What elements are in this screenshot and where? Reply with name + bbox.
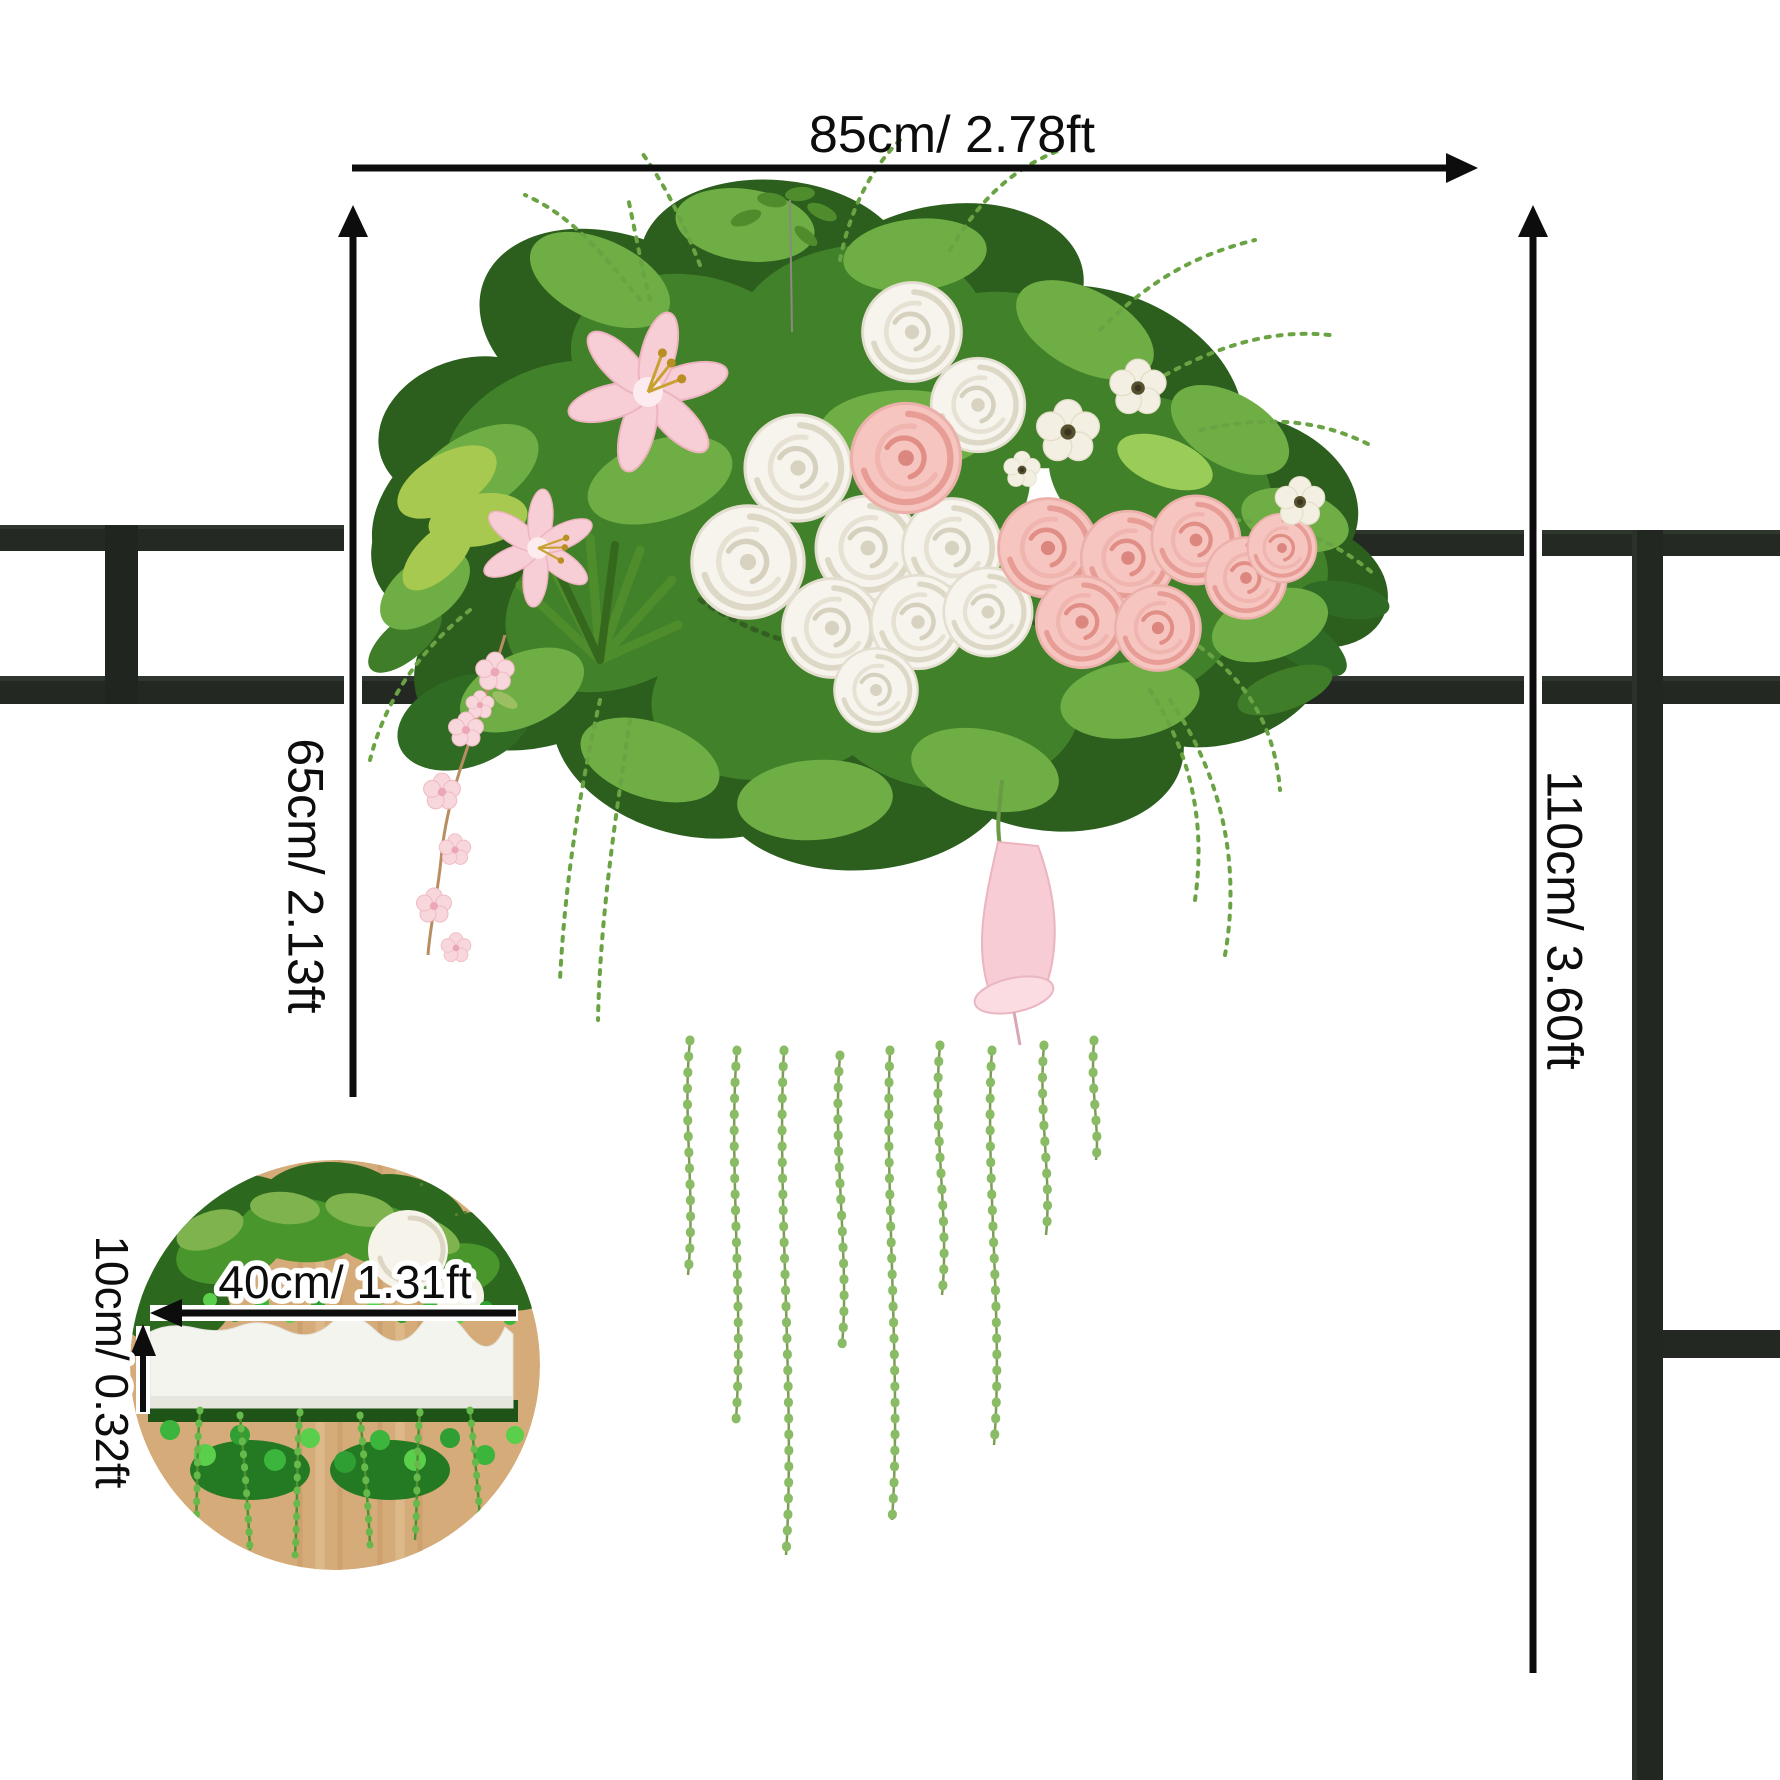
frame-left-connector	[105, 525, 138, 704]
left-height-label: 65cm/ 2.13ft	[278, 738, 334, 1013]
width-arrowhead-right-icon	[1446, 153, 1478, 183]
inset-height-dimension: 10cm/ 0.32ft	[86, 1235, 156, 1488]
left-height-arrowhead-up-icon	[338, 205, 368, 237]
inset-width-label: 40cm/ 1.31ft	[218, 1256, 471, 1308]
width-dimension: 85cm/ 2.78ft	[352, 106, 1478, 183]
inset-height-label: 10cm/ 0.32ft	[86, 1235, 138, 1488]
right-height-dimension: 110cm/ 3.60ft	[1518, 205, 1593, 1673]
left-height-dimension: 65cm/ 2.13ft	[278, 205, 369, 1097]
diagram-canvas: 85cm/ 2.78ft 65cm/ 2.13ft 110cm/ 3.60ft …	[0, 0, 1780, 1780]
inset-detail-photo	[113, 1160, 560, 1570]
right-height-label: 110cm/ 3.60ft	[1537, 770, 1593, 1069]
right-height-arrowhead-up-icon	[1518, 205, 1548, 237]
frame-right-stub-rail	[1662, 1330, 1780, 1358]
width-label: 85cm/ 2.78ft	[809, 106, 1096, 164]
product-dimension-diagram: 85cm/ 2.78ft 65cm/ 2.13ft 110cm/ 3.60ft …	[0, 0, 1780, 1780]
hanging-vines	[687, 1040, 1097, 1555]
